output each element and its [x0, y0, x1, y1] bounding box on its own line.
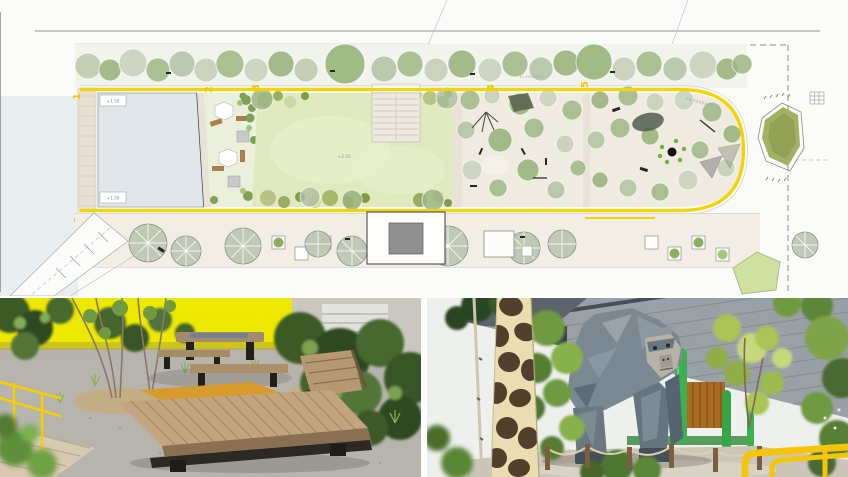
presentation-board: +1.50 +1.50: [0, 0, 848, 477]
pool-elevation-bottom: +1.50: [107, 196, 120, 201]
photo-gorilla-art: [427, 298, 848, 477]
lawn-terrace: [372, 84, 420, 142]
pool-elevation-top: +1.50: [107, 99, 120, 104]
lawn-elevation: +2.50: [338, 154, 351, 159]
zone-marker-1: 1: [72, 93, 83, 100]
timber-path-left: [78, 88, 96, 212]
site-plan: +1.50 +1.50: [0, 0, 848, 296]
photo-bench-garden-art: [0, 298, 421, 477]
hex-deck-1: [215, 102, 233, 120]
photo-bench-garden: [0, 298, 421, 477]
zone5-playground: [587, 86, 745, 207]
street-annotation-left: ELEMENTS: [520, 75, 544, 79]
zone-marker-4: 4: [486, 84, 497, 91]
zone-marker-3: 3: [251, 84, 262, 91]
site-plan-drawing: +1.50 +1.50: [0, 0, 848, 296]
zone2-garden: [204, 93, 258, 208]
zone4-playground: [457, 88, 586, 207]
sidewalk-strip: [75, 212, 760, 268]
picnic-bench-rear: [158, 350, 230, 357]
zone3-lawn: +2.50: [251, 84, 458, 211]
zone1-pool: +1.50 +1.50: [98, 93, 204, 207]
zone-marker-5: 5: [580, 81, 591, 88]
hex-deck-2: [219, 149, 237, 167]
photo-gorilla-sculpture: [427, 298, 848, 477]
play-dome: [668, 148, 677, 157]
picnic-bench-front: [190, 364, 288, 373]
zone-marker-2: 2: [204, 86, 215, 93]
